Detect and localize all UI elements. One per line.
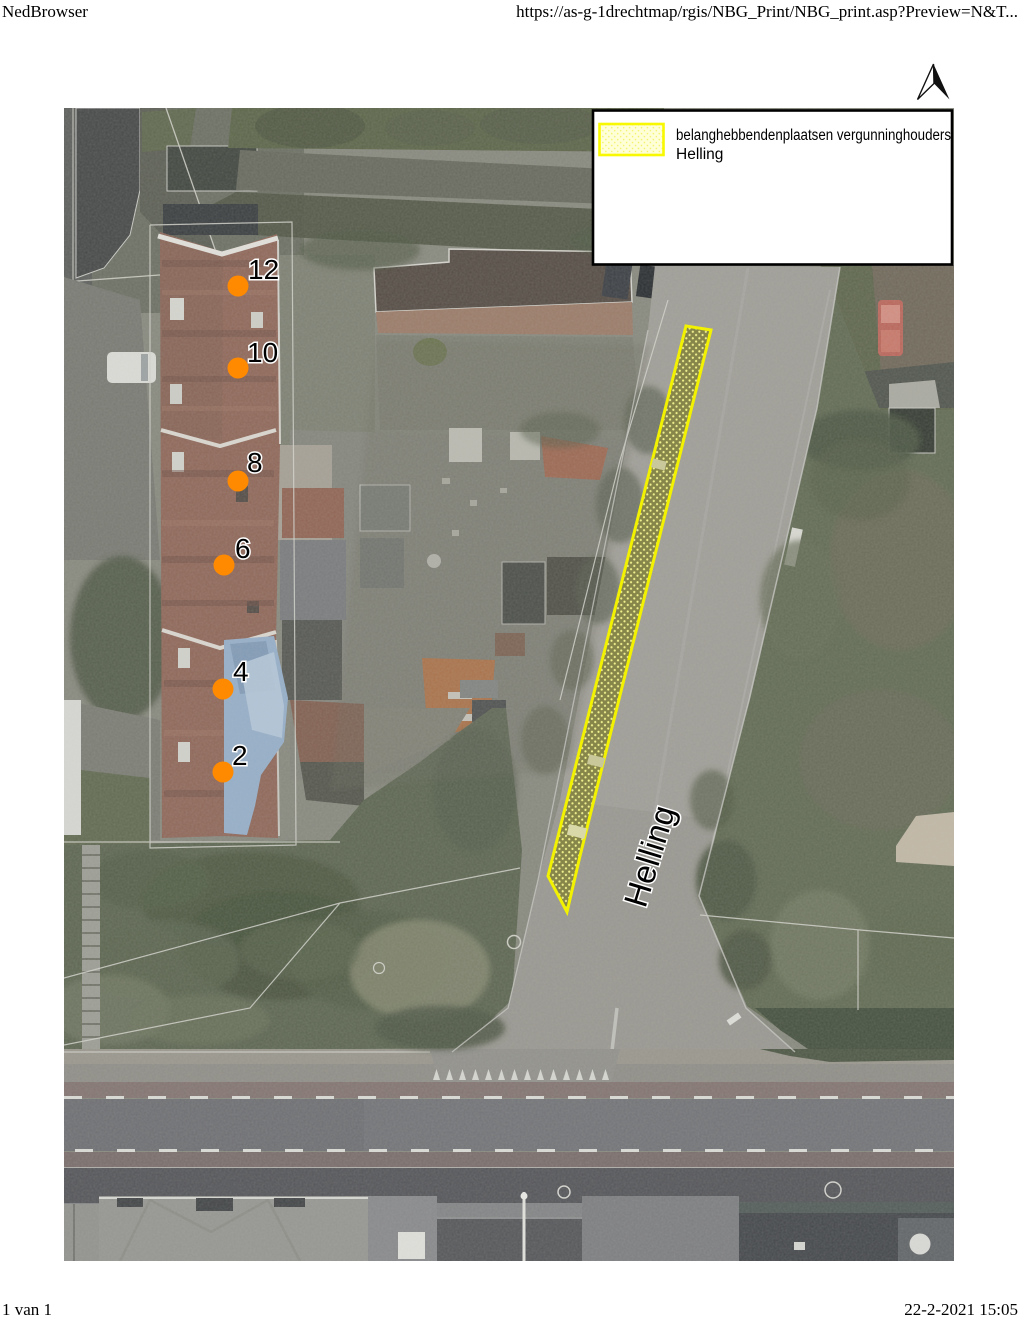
svg-text:1 van 1: 1 van 1 (2, 1300, 52, 1319)
svg-text:Helling: Helling (676, 146, 723, 163)
svg-text:https://as-g-1drechtmap/rgis/N: https://as-g-1drechtmap/rgis/NBG_Print/N… (516, 2, 1018, 21)
svg-text:4: 4 (233, 656, 249, 687)
svg-text:belanghebbendenplaatsen vergun: belanghebbendenplaatsen vergunninghouder… (676, 127, 951, 144)
svg-text:22-2-2021 15:05: 22-2-2021 15:05 (904, 1300, 1018, 1319)
svg-text:10: 10 (247, 337, 278, 368)
svg-text:2: 2 (232, 740, 248, 771)
svg-text:6: 6 (235, 533, 251, 564)
svg-text:8: 8 (247, 447, 263, 478)
svg-text:12: 12 (248, 254, 279, 285)
svg-text:NedBrowser: NedBrowser (2, 2, 88, 21)
